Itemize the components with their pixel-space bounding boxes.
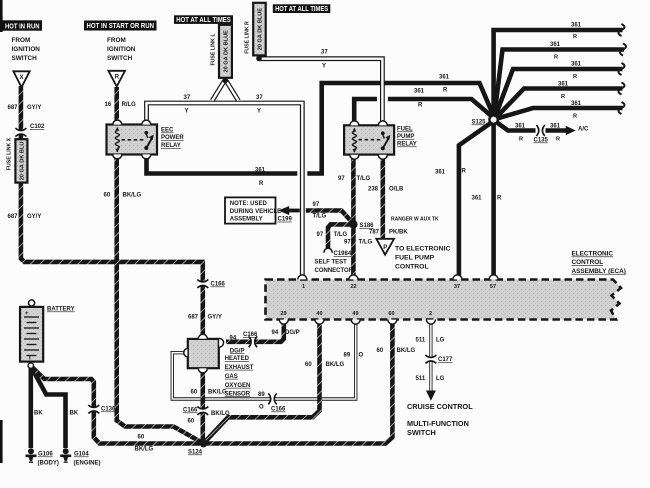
svg-text:2: 2	[429, 311, 432, 317]
svg-text:TO ELECTRONIC: TO ELECTRONIC	[395, 246, 450, 253]
svg-text:37: 37	[256, 95, 263, 101]
svg-text:R: R	[561, 94, 565, 100]
svg-text:SWITCH: SWITCH	[107, 55, 133, 62]
svg-text:238: 238	[368, 186, 379, 192]
svg-text:687: 687	[8, 105, 19, 111]
svg-text:R/LG: R/LG	[122, 102, 137, 108]
svg-text:FUSE LINK R: FUSE LINK R	[244, 21, 250, 54]
svg-text:BK/LG: BK/LG	[326, 362, 345, 368]
svg-text:361: 361	[550, 42, 561, 48]
svg-text:361: 361	[515, 124, 526, 130]
svg-text:CONNECTOR: CONNECTOR	[315, 268, 354, 274]
svg-text:IGNITION: IGNITION	[12, 46, 41, 53]
svg-text:T/LG: T/LG	[313, 213, 327, 219]
svg-text:DG/P: DG/P	[230, 348, 245, 354]
svg-text:CONTROL: CONTROL	[395, 264, 429, 271]
svg-text:R: R	[573, 34, 577, 40]
svg-text:LG: LG	[436, 376, 445, 382]
svg-text:T/LG: T/LG	[334, 232, 348, 238]
svg-text:361: 361	[414, 89, 425, 95]
svg-text:HEATED: HEATED	[225, 356, 250, 362]
svg-text:HOT IN RUN: HOT IN RUN	[5, 23, 40, 30]
svg-text:511: 511	[416, 338, 426, 344]
svg-text:R: R	[497, 196, 502, 202]
svg-text:49: 49	[352, 311, 358, 317]
svg-text:R: R	[443, 88, 448, 94]
svg-text:SELF TEST: SELF TEST	[315, 260, 348, 266]
svg-text:R: R	[418, 103, 423, 109]
svg-text:361: 361	[571, 101, 582, 107]
svg-text:RELAY: RELAY	[397, 142, 417, 148]
svg-text:HOT AT ALL TIMES: HOT AT ALL TIMES	[275, 6, 328, 13]
svg-text:SENSOR: SENSOR	[225, 391, 251, 397]
svg-text:CRUISE CONTROL: CRUISE CONTROL	[407, 402, 473, 411]
svg-text:20 GA DK BLUE: 20 GA DK BLUE	[224, 30, 230, 73]
svg-text:511: 511	[416, 376, 426, 382]
svg-text:FROM: FROM	[12, 37, 31, 44]
svg-text:HOT IN START OR RUN: HOT IN START OR RUN	[87, 23, 155, 30]
svg-text:Y: Y	[185, 109, 189, 115]
svg-text:R: R	[115, 75, 120, 81]
svg-text:60: 60	[191, 389, 198, 395]
svg-text:687: 687	[188, 315, 199, 321]
svg-text:60: 60	[388, 311, 394, 317]
svg-text:T/LG: T/LG	[357, 176, 371, 182]
svg-text:40: 40	[316, 311, 322, 317]
svg-text:FUEL: FUEL	[397, 127, 413, 133]
svg-text:DURING VEHICLE: DURING VEHICLE	[230, 209, 281, 215]
svg-text:37: 37	[454, 284, 460, 290]
svg-text:Y: Y	[322, 64, 326, 70]
svg-text:97: 97	[338, 176, 345, 182]
svg-text:C166: C166	[271, 407, 286, 413]
svg-text:C136: C136	[101, 407, 116, 413]
svg-text:22: 22	[350, 284, 356, 290]
svg-text:EXHAUST: EXHAUST	[225, 365, 254, 371]
svg-text:FROM: FROM	[107, 37, 126, 44]
svg-text:BATTERY: BATTERY	[47, 307, 75, 313]
svg-text:BK/LG: BK/LG	[211, 411, 230, 417]
svg-text:C166: C166	[211, 282, 226, 288]
svg-text:R: R	[519, 137, 523, 143]
svg-text:IGNITION: IGNITION	[107, 46, 136, 53]
svg-text:A/C: A/C	[578, 127, 589, 133]
svg-text:(ENGINE): (ENGINE)	[74, 461, 101, 467]
svg-text:16: 16	[105, 102, 112, 108]
svg-text:RANGER W AUX TK: RANGER W AUX TK	[391, 217, 439, 223]
svg-text:PK/BK: PK/BK	[389, 229, 408, 235]
svg-text:C166: C166	[243, 332, 258, 338]
svg-text:20 GA DK BLU: 20 GA DK BLU	[20, 142, 26, 181]
svg-text:S124: S124	[188, 450, 203, 456]
svg-text:R: R	[259, 181, 264, 187]
svg-text:+: +	[25, 311, 29, 317]
svg-text:361: 361	[571, 23, 582, 29]
svg-text:20 GA DK BLUE: 20 GA DK BLUE	[258, 8, 264, 51]
svg-text:GY/Y: GY/Y	[27, 214, 41, 220]
svg-text:687: 687	[8, 214, 19, 220]
svg-text:P: P	[383, 245, 387, 251]
svg-text:60: 60	[188, 419, 195, 425]
svg-text:FUSE LINK X: FUSE LINK X	[6, 137, 12, 170]
svg-text:R: R	[573, 113, 577, 119]
svg-text:R: R	[462, 168, 467, 174]
svg-text:ASSEMBLY (ECA): ASSEMBLY (ECA)	[572, 268, 626, 275]
svg-text:BK: BK	[34, 411, 43, 417]
svg-text:BK/LG: BK/LG	[397, 348, 416, 354]
svg-text:SWITCH: SWITCH	[12, 55, 38, 62]
svg-text:94: 94	[230, 336, 237, 342]
svg-text:361: 361	[472, 196, 483, 202]
svg-text:361: 361	[571, 62, 582, 68]
svg-text:89: 89	[344, 353, 351, 359]
svg-text:361: 361	[558, 81, 569, 87]
svg-text:(BODY): (BODY)	[38, 461, 59, 467]
svg-text:DG/P: DG/P	[285, 330, 300, 336]
svg-text:37: 37	[184, 95, 191, 101]
svg-text:97: 97	[313, 202, 320, 208]
svg-text:S186: S186	[360, 223, 375, 229]
svg-text:R: R	[554, 54, 558, 60]
svg-text:R: R	[556, 137, 560, 143]
svg-text:BK/LG: BK/LG	[208, 389, 227, 395]
svg-text:C102: C102	[30, 124, 45, 130]
svg-text:NOTE: USED: NOTE: USED	[230, 201, 268, 207]
svg-text:BK/LG: BK/LG	[123, 193, 142, 199]
svg-text:361: 361	[550, 124, 561, 130]
svg-text:361: 361	[255, 167, 266, 173]
svg-text:60: 60	[377, 348, 384, 354]
svg-text:EEC: EEC	[161, 128, 174, 134]
svg-text:94: 94	[272, 330, 279, 336]
svg-text:97: 97	[344, 239, 351, 245]
svg-text:PUMP: PUMP	[397, 134, 414, 140]
svg-text:C177: C177	[438, 357, 453, 363]
svg-text:29: 29	[280, 311, 286, 317]
svg-text:GAS: GAS	[225, 374, 238, 380]
svg-text:HOT AT ALL TIMES: HOT AT ALL TIMES	[176, 17, 231, 24]
svg-text:T/LG: T/LG	[359, 239, 373, 245]
svg-text:CONTROL: CONTROL	[572, 259, 604, 266]
svg-text:RELAY: RELAY	[161, 143, 181, 149]
svg-text:SWITCH: SWITCH	[407, 428, 436, 437]
svg-text:GY/Y: GY/Y	[208, 315, 222, 321]
svg-text:361: 361	[439, 75, 450, 81]
svg-text:X: X	[19, 75, 23, 81]
svg-text:FUSE LINK L: FUSE LINK L	[210, 33, 216, 66]
svg-text:O: O	[259, 405, 264, 411]
svg-text:37: 37	[321, 50, 328, 56]
svg-text:BK: BK	[70, 411, 79, 417]
svg-text:O/LB: O/LB	[389, 186, 404, 192]
svg-text:POWER: POWER	[161, 135, 184, 141]
svg-text:C199: C199	[278, 217, 293, 223]
svg-text:1: 1	[302, 284, 305, 290]
svg-text:G106: G106	[38, 452, 53, 458]
svg-text:LG: LG	[436, 338, 445, 344]
svg-text:BK/LG: BK/LG	[135, 447, 154, 453]
svg-text:O: O	[359, 353, 364, 359]
svg-text:MULTI-FUNCTION: MULTI-FUNCTION	[407, 419, 469, 428]
svg-text:787: 787	[369, 229, 380, 235]
svg-text:ASSEMBLY: ASSEMBLY	[230, 217, 263, 223]
svg-text:60: 60	[104, 193, 111, 199]
svg-text:89: 89	[258, 392, 265, 398]
svg-text:S125: S125	[472, 120, 487, 126]
svg-text:60: 60	[138, 435, 145, 441]
svg-text:OXYGEN: OXYGEN	[225, 383, 251, 389]
svg-text:C135: C135	[534, 138, 549, 144]
svg-text:C1984: C1984	[334, 251, 352, 257]
svg-text:GY/Y: GY/Y	[27, 105, 41, 111]
svg-text:Y: Y	[257, 109, 261, 115]
svg-text:ELECTRONIC: ELECTRONIC	[572, 251, 614, 258]
svg-text:97: 97	[317, 232, 324, 238]
svg-text:FUEL PUMP: FUEL PUMP	[395, 255, 435, 262]
svg-text:T: T	[28, 356, 32, 362]
svg-text:C166: C166	[183, 408, 198, 414]
svg-text:57: 57	[490, 284, 496, 290]
svg-text:60: 60	[305, 362, 312, 368]
svg-text:R: R	[573, 74, 577, 80]
svg-text:G104: G104	[74, 452, 89, 458]
svg-text:361: 361	[435, 170, 446, 176]
